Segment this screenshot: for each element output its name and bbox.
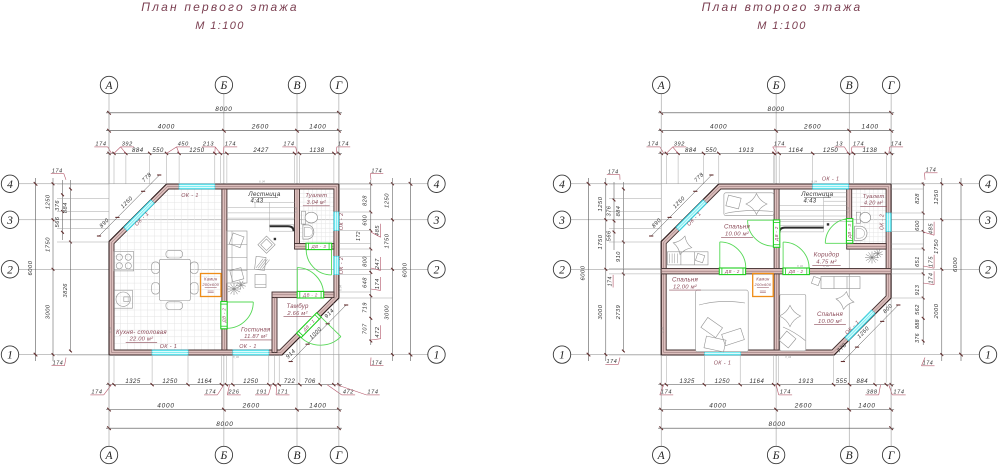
svg-text:8_04: 8_04 [811, 180, 817, 184]
svg-text:1325: 1325 [680, 379, 696, 385]
svg-text:600: 600 [363, 214, 369, 225]
svg-text:1: 1 [434, 350, 440, 362]
svg-text:8_04: 8_04 [294, 207, 298, 213]
svg-text:562: 562 [915, 304, 921, 315]
svg-text:1913: 1913 [739, 148, 755, 154]
svg-text:648: 648 [363, 277, 369, 288]
svg-text:888: 888 [915, 319, 921, 329]
svg-text:В: В [293, 450, 300, 462]
svg-text:1400: 1400 [309, 403, 326, 410]
svg-text:ДВ - 2: ДВ - 2 [222, 308, 227, 324]
svg-text:10.00 м²: 10.00 м² [818, 319, 843, 325]
svg-text:1138: 1138 [862, 148, 877, 154]
svg-text:566: 566 [55, 216, 61, 227]
svg-text:1750: 1750 [598, 234, 604, 249]
svg-text:Коридор: Коридор [814, 252, 840, 259]
svg-text:1750: 1750 [45, 237, 51, 252]
svg-text:Г: Г [335, 80, 343, 92]
svg-text:ОК - 1: ОК - 1 [822, 176, 840, 182]
svg-text:2600: 2600 [251, 124, 269, 131]
svg-text:В: В [293, 80, 300, 92]
svg-text:884: 884 [857, 379, 869, 385]
svg-text:1400: 1400 [861, 124, 878, 131]
svg-text:828: 828 [363, 195, 369, 206]
svg-text:А: А [104, 450, 113, 462]
svg-text:8000: 8000 [215, 106, 232, 113]
svg-text:А: А [104, 80, 113, 92]
svg-text:2: 2 [559, 264, 565, 276]
svg-text:А: А [657, 80, 666, 92]
svg-text:884: 884 [685, 148, 697, 154]
svg-text:1250: 1250 [715, 379, 731, 385]
svg-text:Спальня: Спальня [672, 277, 699, 284]
svg-text:651: 651 [915, 256, 921, 267]
svg-text:4:43: 4:43 [251, 199, 264, 205]
svg-text:1325: 1325 [125, 379, 141, 385]
svg-text:Камин: Камин [756, 276, 770, 281]
svg-text:2: 2 [7, 264, 13, 276]
svg-text:8000: 8000 [768, 421, 785, 428]
svg-text:ОК - 2: ОК - 2 [339, 213, 345, 231]
svg-text:175: 175 [929, 256, 935, 267]
svg-text:3: 3 [558, 215, 565, 227]
svg-text:1164: 1164 [749, 379, 764, 385]
svg-text:555: 555 [836, 379, 848, 385]
svg-text:910: 910 [616, 251, 622, 262]
svg-text:М 1:100: М 1:100 [195, 20, 245, 32]
svg-text:ДВ - 3: ДВ - 3 [311, 244, 327, 249]
svg-text:8000: 8000 [216, 421, 233, 428]
svg-text:11.87 м²: 11.87 м² [244, 334, 268, 340]
svg-text:4000: 4000 [157, 403, 174, 410]
svg-text:Б: Б [220, 450, 228, 462]
svg-text:2600: 2600 [242, 403, 260, 410]
svg-text:Б: Б [220, 80, 228, 92]
svg-text:ДВ - 2: ДВ - 2 [724, 269, 740, 274]
svg-text:8_04: 8_04 [339, 285, 343, 291]
svg-text:1400: 1400 [858, 403, 875, 410]
svg-text:ДВ - 2: ДВ - 2 [302, 292, 318, 297]
svg-text:Спальня: Спальня [724, 224, 751, 231]
svg-text:566: 566 [607, 230, 613, 241]
svg-text:ОК - 1: ОК - 1 [239, 344, 257, 350]
svg-text:4.20 м²: 4.20 м² [864, 201, 883, 207]
svg-text:1913: 1913 [798, 379, 814, 385]
svg-text:1750: 1750 [385, 233, 391, 248]
svg-text:706: 706 [304, 379, 316, 385]
svg-text:4: 4 [559, 179, 565, 191]
svg-text:884: 884 [616, 206, 622, 217]
svg-text:8_04: 8_04 [661, 327, 665, 333]
svg-text:ОК - 2: ОК - 2 [879, 214, 885, 230]
svg-text:Лестница: Лестница [247, 191, 280, 198]
svg-text:Туалет: Туалет [305, 193, 327, 199]
svg-text:8_04: 8_04 [785, 355, 791, 359]
svg-text:Тамбур: Тамбур [286, 303, 308, 310]
svg-text:200x600: 200x600 [201, 282, 219, 287]
svg-text:3: 3 [433, 215, 440, 227]
svg-text:1250: 1250 [598, 196, 604, 211]
svg-text:ОК - 2: ОК - 2 [339, 257, 345, 275]
svg-text:550: 550 [152, 148, 164, 154]
svg-text:8000: 8000 [767, 106, 784, 113]
svg-text:10.00 м²: 10.00 м² [725, 232, 750, 238]
svg-text:6000: 6000 [28, 260, 34, 275]
svg-text:Б: Б [772, 450, 780, 462]
svg-text:Гостиная: Гостиная [241, 326, 271, 333]
svg-text:22.00 м²: 22.00 м² [129, 337, 154, 343]
svg-text:4000: 4000 [158, 124, 175, 131]
svg-text:В: В [846, 450, 853, 462]
svg-text:8_04: 8_04 [846, 207, 850, 213]
svg-text:4: 4 [434, 179, 440, 191]
svg-text:ДВ - 2: ДВ - 2 [788, 269, 804, 274]
svg-text:172: 172 [356, 231, 362, 241]
svg-text:1: 1 [985, 350, 991, 362]
svg-text:Лестница: Лестница [800, 191, 833, 198]
svg-text:1138: 1138 [310, 148, 325, 154]
svg-text:2000: 2000 [934, 303, 940, 319]
svg-text:376: 376 [607, 205, 613, 216]
svg-text:376: 376 [55, 200, 61, 211]
svg-text:600: 600 [915, 220, 921, 231]
svg-text:ДВ - 2: ДВ - 2 [774, 226, 779, 242]
svg-text:ОК - 1: ОК - 1 [160, 344, 178, 350]
svg-text:ОК - 1: ОК - 1 [181, 193, 199, 199]
svg-text:8_04: 8_04 [797, 264, 803, 268]
svg-text:1164: 1164 [788, 148, 803, 154]
svg-text:719: 719 [363, 302, 369, 313]
svg-text:4: 4 [7, 179, 13, 191]
svg-text:376: 376 [915, 333, 921, 343]
svg-text:247: 247 [375, 258, 381, 270]
svg-text:174: 174 [929, 272, 935, 283]
svg-text:2600: 2600 [803, 124, 821, 131]
svg-text:3826: 3826 [63, 283, 69, 298]
svg-text:485: 485 [375, 225, 381, 236]
svg-text:1250: 1250 [385, 193, 391, 208]
svg-text:Спальня: Спальня [817, 311, 844, 318]
svg-text:Камин: Камин [204, 276, 218, 281]
svg-text:4: 4 [985, 179, 991, 191]
svg-text:3000: 3000 [45, 304, 51, 319]
svg-text:884: 884 [132, 148, 144, 154]
svg-text:8_04: 8_04 [233, 355, 239, 359]
svg-text:6000: 6000 [403, 262, 409, 277]
svg-text:1: 1 [7, 350, 13, 362]
svg-text:1400: 1400 [309, 124, 326, 131]
svg-text:Г: Г [887, 80, 895, 92]
svg-text:4:43: 4:43 [804, 199, 817, 205]
svg-text:1250: 1250 [243, 379, 259, 385]
svg-text:200x600: 200x600 [754, 282, 772, 287]
svg-text:Туалет: Туалет [863, 194, 885, 200]
svg-text:3000: 3000 [598, 304, 604, 319]
svg-text:550: 550 [705, 148, 717, 154]
svg-text:Кухня- столовая: Кухня- столовая [116, 329, 167, 336]
svg-text:4000: 4000 [709, 403, 726, 410]
svg-text:2: 2 [434, 264, 440, 276]
svg-text:План первого этажа: План первого этажа [141, 0, 298, 14]
svg-text:8_04: 8_04 [109, 327, 113, 333]
svg-text:2: 2 [985, 264, 991, 276]
svg-text:ДВ - 3: ДВ - 3 [847, 223, 852, 239]
svg-text:Г: Г [887, 450, 895, 462]
svg-text:174: 174 [608, 276, 614, 286]
svg-text:707: 707 [363, 323, 369, 334]
svg-text:1250: 1250 [162, 379, 178, 385]
svg-text:8_04: 8_04 [823, 264, 829, 268]
svg-text:4000: 4000 [710, 124, 727, 131]
svg-text:2600: 2600 [794, 403, 812, 410]
svg-text:1250: 1250 [189, 148, 205, 154]
svg-text:913: 913 [915, 284, 921, 295]
svg-text:472: 472 [375, 326, 381, 337]
svg-text:12.00 м²: 12.00 м² [673, 284, 698, 290]
svg-text:1: 1 [559, 350, 565, 362]
svg-text:Б: Б [772, 80, 780, 92]
svg-text:3000: 3000 [385, 305, 391, 320]
svg-text:Г: Г [335, 450, 343, 462]
svg-text:1164: 1164 [197, 379, 212, 385]
svg-text:6000: 6000 [581, 265, 587, 280]
svg-text:800: 800 [363, 256, 369, 267]
svg-text:6000: 6000 [953, 257, 959, 272]
svg-text:2.66 м²: 2.66 м² [286, 311, 308, 317]
svg-text:М 1:100: М 1:100 [757, 20, 807, 32]
svg-text:485: 485 [929, 223, 935, 234]
svg-text:1250: 1250 [934, 189, 940, 204]
svg-text:ОК - 1: ОК - 1 [714, 361, 732, 367]
svg-text:А: А [657, 450, 666, 462]
svg-text:722: 722 [284, 379, 296, 385]
svg-text:В: В [846, 80, 853, 92]
svg-text:3: 3 [984, 215, 991, 227]
svg-text:План второго этажа: План второго этажа [702, 0, 863, 14]
svg-text:1250: 1250 [45, 194, 51, 209]
svg-text:8_04: 8_04 [259, 180, 265, 184]
svg-text:174: 174 [375, 278, 381, 289]
svg-text:2427: 2427 [252, 148, 269, 154]
svg-text:828: 828 [915, 193, 921, 204]
svg-text:1250: 1250 [823, 148, 839, 154]
svg-text:3: 3 [6, 215, 13, 227]
svg-text:2739: 2739 [616, 305, 622, 320]
svg-text:3.04 м²: 3.04 м² [307, 200, 326, 206]
svg-text:1750: 1750 [934, 239, 940, 254]
